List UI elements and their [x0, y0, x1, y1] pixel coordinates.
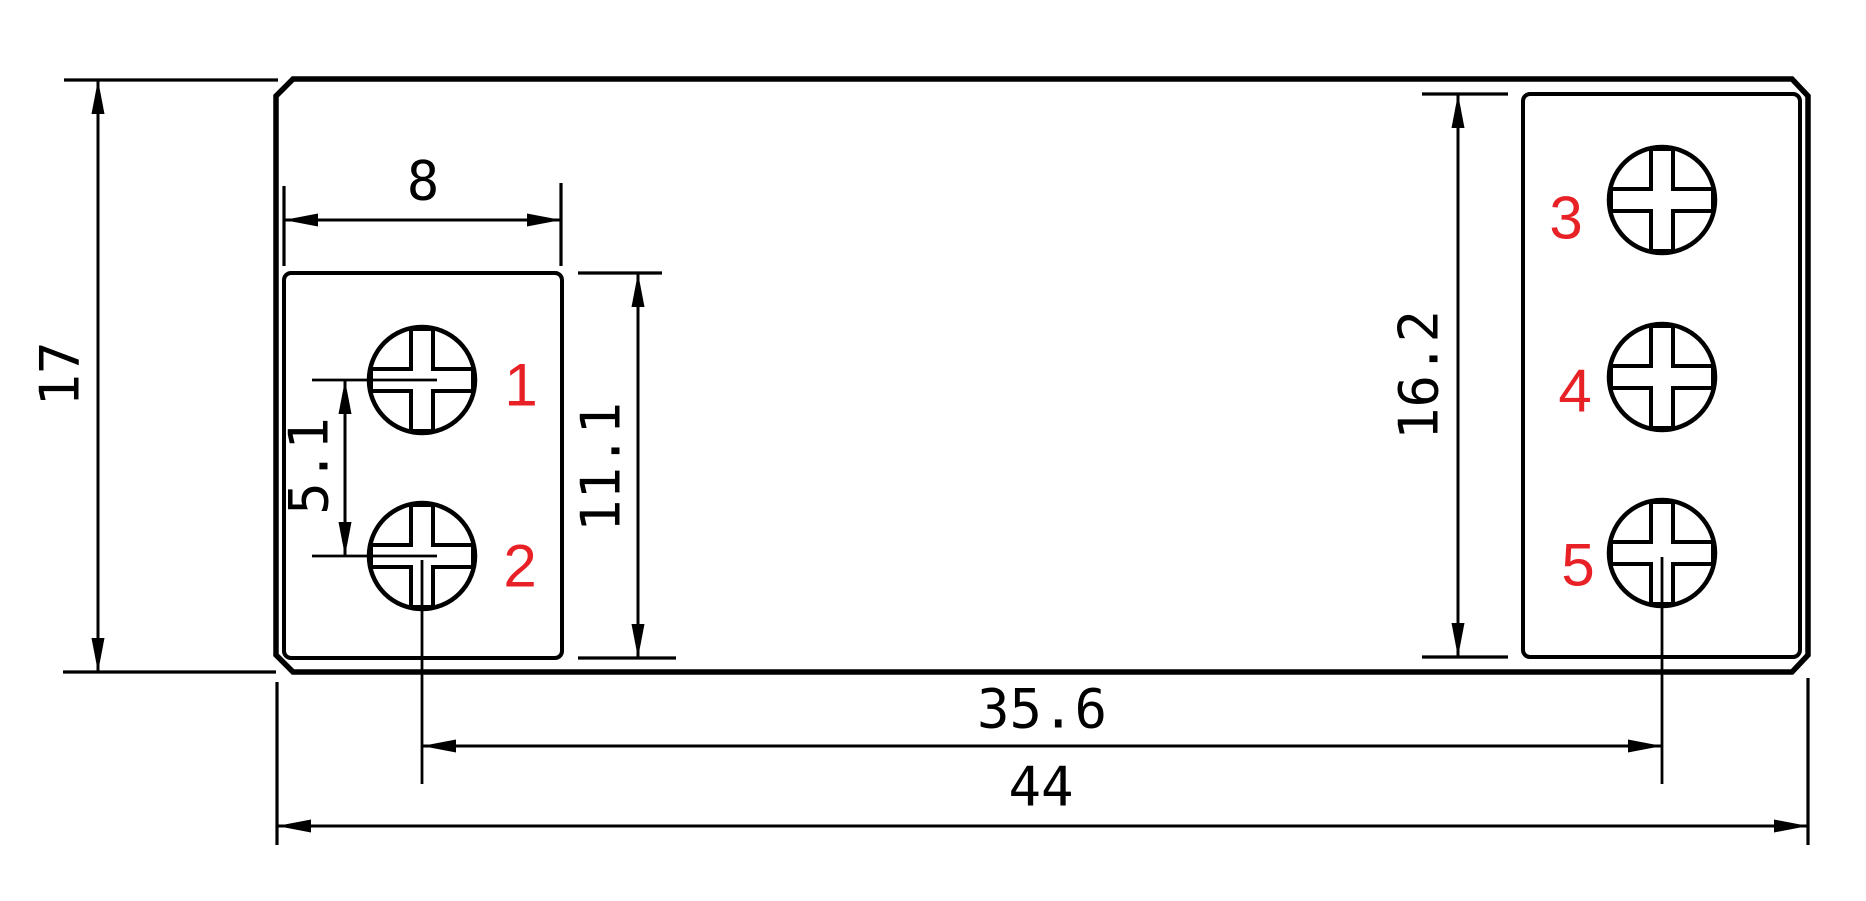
drawing-canvas: 17 8 5.1 11.1 — [0, 0, 1866, 901]
screw-terminal-3 — [1609, 147, 1715, 253]
arrowhead-left-icon — [277, 820, 311, 833]
terminal-label-4: 4 — [1558, 358, 1591, 425]
arrowhead-up-icon — [92, 80, 105, 114]
dimension-overall-height: 17 — [28, 80, 278, 672]
arrowhead-right-icon — [1774, 820, 1808, 833]
terminal-label-5: 5 — [1561, 532, 1594, 599]
dimension-text-11-1: 11.1 — [569, 402, 632, 532]
terminal-label-2: 2 — [503, 533, 536, 600]
dimension-text-35-6: 35.6 — [977, 677, 1107, 740]
arrowhead-left-icon — [422, 740, 456, 753]
dimension-text-8: 8 — [407, 149, 440, 212]
arrowhead-down-icon — [92, 638, 105, 672]
technical-drawing-svg: 17 8 5.1 11.1 — [0, 0, 1866, 901]
arrowhead-right-icon — [1628, 740, 1662, 753]
dimension-text-5-1: 5.1 — [277, 417, 340, 515]
terminal-label-3: 3 — [1549, 185, 1582, 252]
dimension-text-17: 17 — [28, 341, 91, 406]
dimension-text-44: 44 — [1008, 755, 1073, 818]
dimension-text-16-2: 16.2 — [1387, 310, 1450, 440]
screw-terminal-4 — [1609, 324, 1715, 430]
terminal-label-1: 1 — [504, 352, 537, 419]
